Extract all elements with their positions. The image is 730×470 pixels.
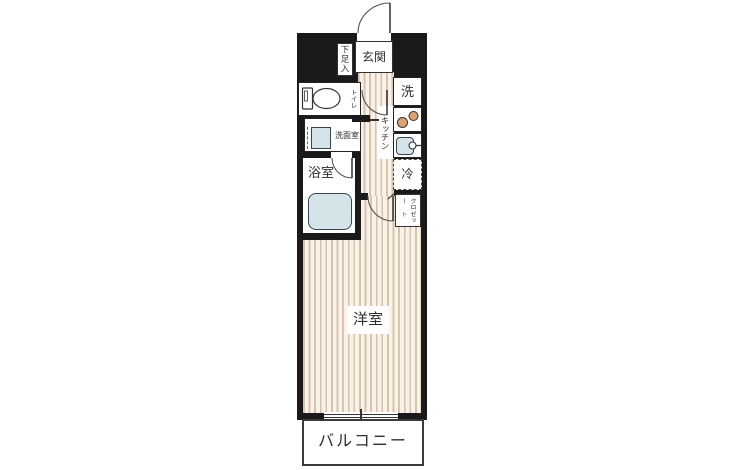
balcony: バルコニー [302, 419, 424, 466]
shoe-cabinet-label: 下足入 [339, 45, 351, 74]
wall-stub-corridor [352, 115, 370, 122]
entrance-door-arc [358, 3, 390, 33]
main-room-label-box: 洋室 [347, 306, 389, 334]
wall-stub-main-door [356, 193, 368, 200]
toilet-label: トイレ [347, 85, 357, 113]
genkan-label: 玄関 [362, 51, 386, 64]
washer-box: 洗 [393, 77, 422, 106]
closet: クローゼット [395, 194, 421, 227]
vanity-sink [311, 127, 331, 149]
knee-space-dashed-line [307, 127, 308, 149]
closet-label: クローゼット [397, 198, 419, 224]
kitchen-label: キッチン [377, 107, 393, 158]
floor-plan-canvas: 玄関 下足入 トイレ 洗面室 浴室 キッチン 洗 [0, 0, 730, 470]
fridge-label: 冷 [401, 168, 413, 181]
shoe-cabinet: 下足入 [337, 43, 353, 76]
washer-label: 洗 [401, 85, 414, 99]
kitchen-sink [393, 133, 422, 158]
main-room-label: 洋室 [353, 312, 383, 328]
toilet-room: トイレ [298, 82, 361, 116]
washroom: 洗面室 [304, 118, 361, 152]
bathtub [308, 193, 352, 230]
bathroom-label: 浴室 [305, 165, 337, 181]
balcony-label: バルコニー [318, 434, 408, 451]
stove [393, 107, 422, 132]
fridge-box: 冷 [393, 159, 422, 190]
genkan-room: 玄関 [355, 41, 393, 73]
washroom-label: 洗面室 [333, 129, 361, 143]
bathroom-door-opening [331, 152, 352, 158]
sink-basin [396, 137, 414, 155]
